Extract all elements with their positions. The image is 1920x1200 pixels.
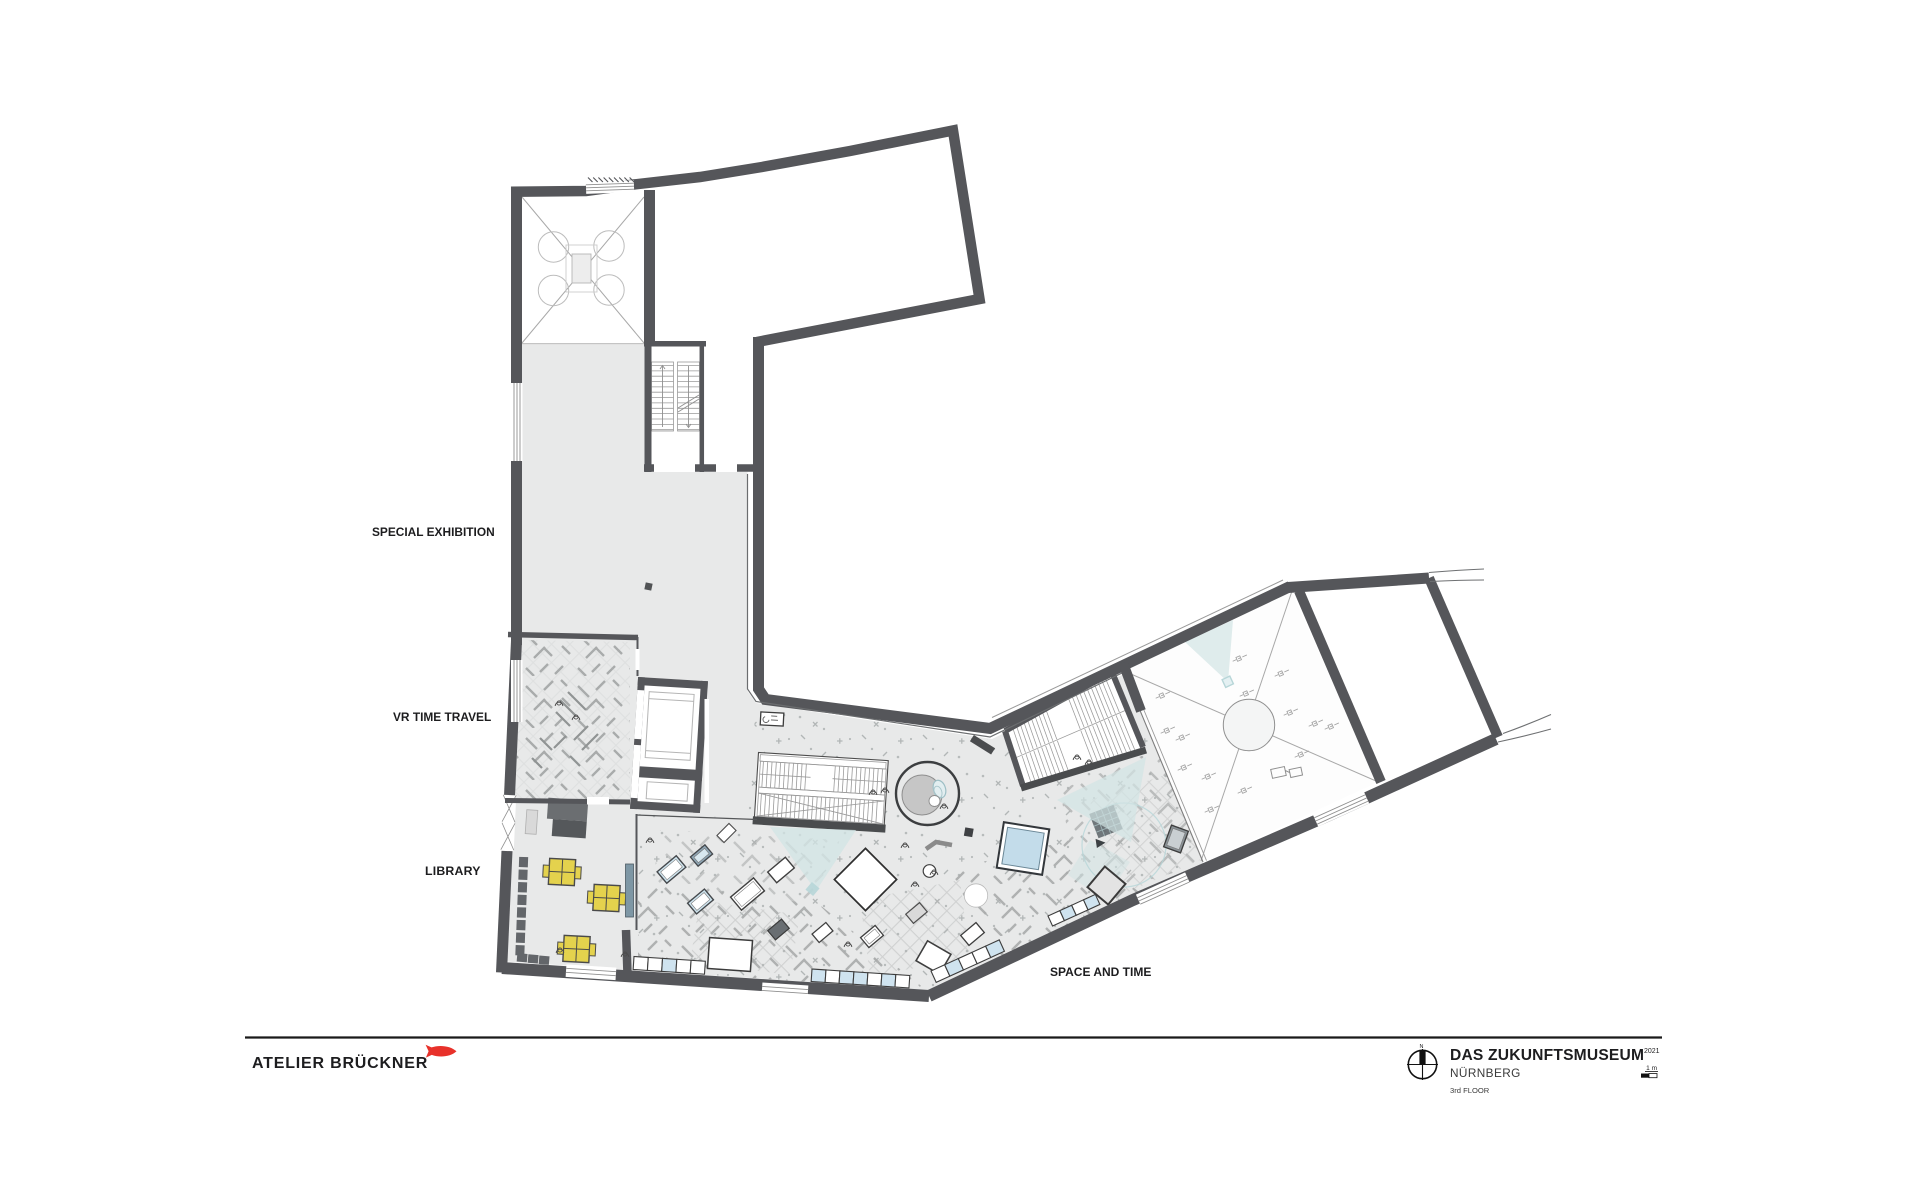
svg-text:ATELIER BRÜCKNER: ATELIER BRÜCKNER <box>252 1053 428 1072</box>
svg-text:1 m: 1 m <box>1646 1065 1657 1072</box>
svg-text:DAS ZUKUNFTSMUSEUM: DAS ZUKUNFTSMUSEUM <box>1450 1047 1644 1064</box>
svg-text:SPACE AND TIME: SPACE AND TIME <box>1050 965 1151 979</box>
svg-text:NÜRNBERG: NÜRNBERG <box>1450 1066 1521 1080</box>
svg-text:3rd FLOOR: 3rd FLOOR <box>1450 1086 1490 1095</box>
svg-text:VR TIME TRAVEL: VR TIME TRAVEL <box>393 710 491 724</box>
svg-text:N: N <box>1420 1044 1424 1050</box>
svg-text:SPECIAL EXHIBITION: SPECIAL EXHIBITION <box>372 525 495 539</box>
svg-text:LIBRARY: LIBRARY <box>425 864 481 878</box>
svg-text:2021: 2021 <box>1644 1048 1660 1055</box>
